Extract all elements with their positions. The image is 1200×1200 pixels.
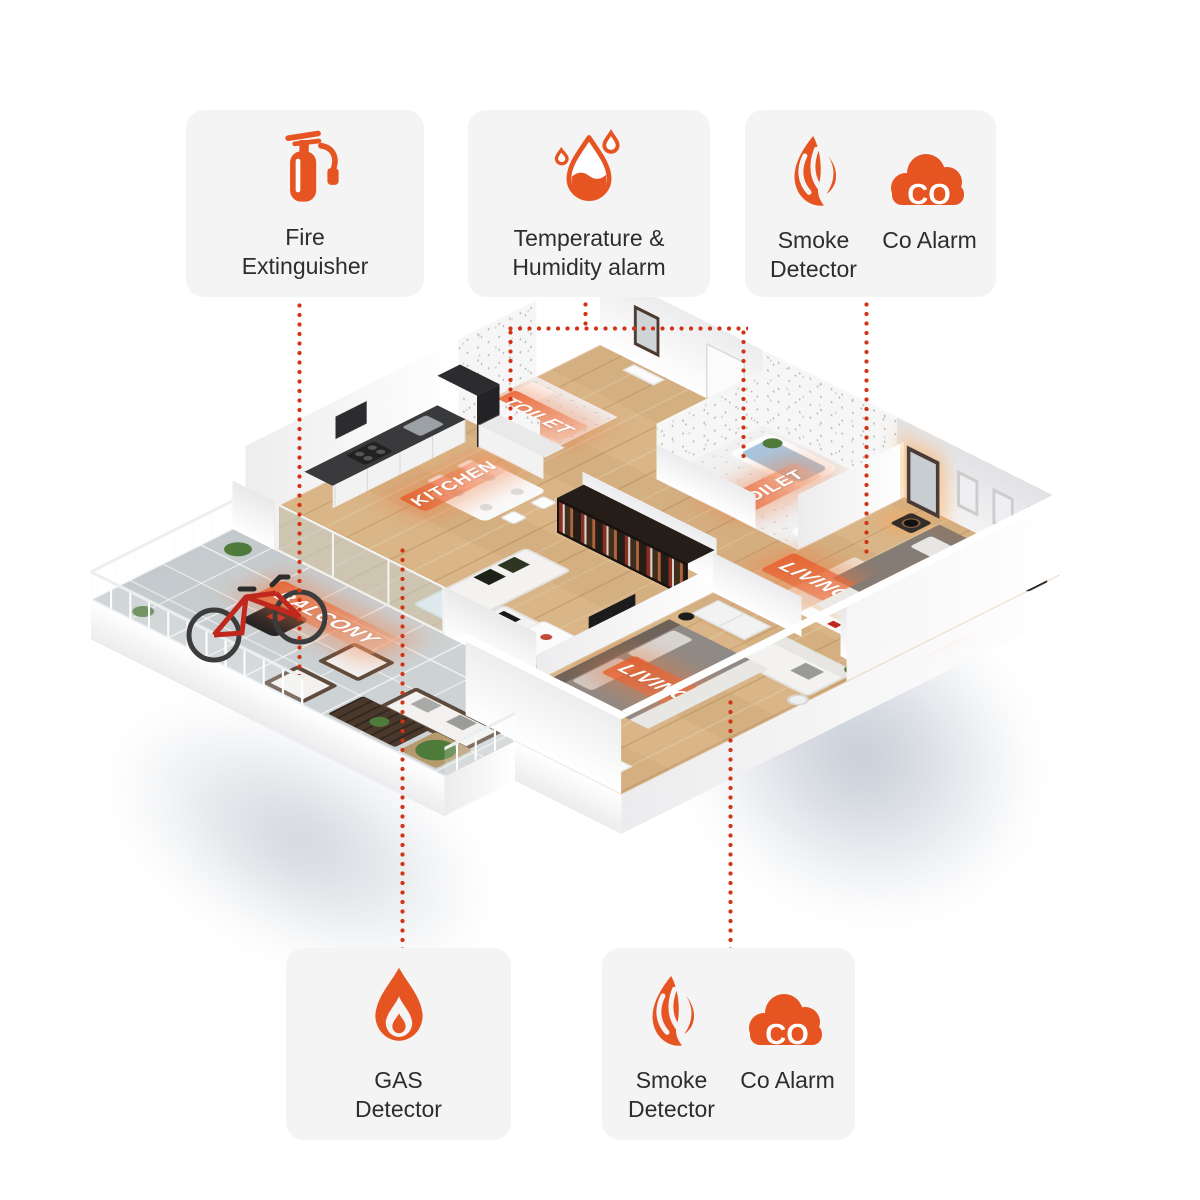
smoke-icon — [643, 968, 701, 1056]
outdoor-pillow — [410, 697, 441, 713]
humidity-drop-icon — [546, 126, 632, 212]
card-label: Temperature & Humidity alarm — [491, 224, 687, 281]
co-cloud-icon: CO — [738, 986, 838, 1056]
card-smoke-co-bottom: Smoke Detector CO Co Alarm — [602, 948, 855, 1140]
connector-fire-extinguisher — [297, 303, 302, 675]
co-badge-text: CO — [907, 179, 951, 211]
card-label: Fire Extinguisher — [225, 223, 385, 280]
connector-temp-humidity-left — [508, 330, 513, 422]
bicycle-icon — [180, 555, 340, 667]
sofa-pillow-green — [497, 557, 530, 573]
smoke-icon — [785, 128, 843, 216]
picture-frame-1 — [957, 470, 978, 517]
card-smoke-co-top: Smoke Detector CO Co Alarm — [745, 110, 996, 297]
card-label: Co Alarm — [740, 1066, 835, 1095]
card-label: Co Alarm — [882, 226, 977, 255]
co-badge-text: CO — [765, 1019, 809, 1051]
connector-smoke-co-bottom — [728, 700, 733, 948]
table-flowers — [538, 633, 555, 641]
card-label: Smoke Detector — [762, 226, 866, 283]
connector-smoke-co-top — [864, 302, 869, 558]
card-fire-extinguisher: Fire Extinguisher — [186, 110, 424, 297]
infographic-stage: TOILET TOILET KITCHEN BALCONY LIVING ROO… — [0, 0, 1200, 1200]
sofa-pillow-dark — [473, 569, 506, 585]
range-hood — [336, 401, 367, 439]
card-label: GAS Detector — [339, 1066, 459, 1123]
fire-extinguisher-icon — [263, 127, 347, 211]
card-gas-detector: GAS Detector — [286, 948, 511, 1140]
card-label: Smoke Detector — [620, 1066, 724, 1123]
connector-gas — [400, 548, 405, 950]
co-cloud-icon: CO — [880, 146, 980, 216]
hall-mirror — [634, 305, 659, 358]
gas-flame-icon — [359, 964, 439, 1054]
connector-temp-humidity-bar — [508, 326, 748, 331]
connector-temp-humidity-right — [741, 330, 746, 460]
card-temp-humidity: Temperature & Humidity alarm — [468, 110, 710, 297]
